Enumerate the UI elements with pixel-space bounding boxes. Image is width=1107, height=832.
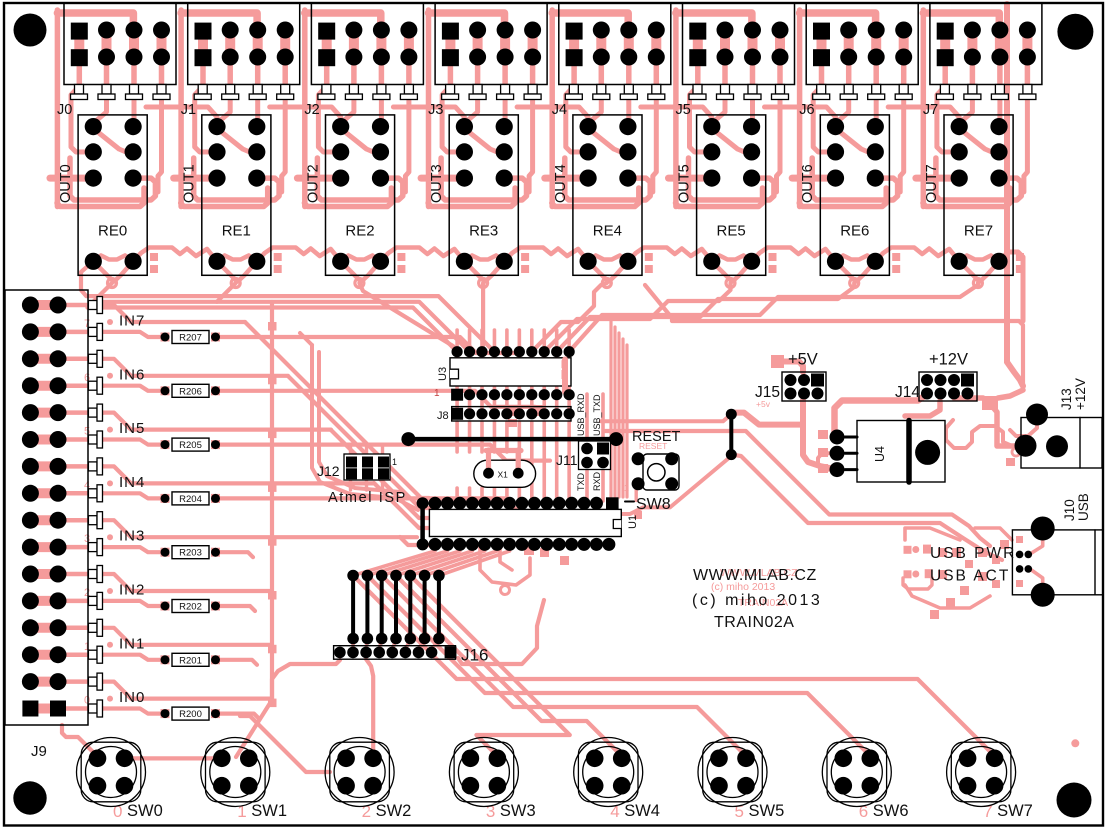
svg-text:+12V: +12V <box>1073 378 1088 410</box>
svg-text:J8: J8 <box>437 410 449 422</box>
svg-text:J5: J5 <box>676 102 691 118</box>
svg-text:OUT0: OUT0 <box>58 164 74 203</box>
svg-text:IN5: IN5 <box>119 420 145 437</box>
svg-text:USB_TXD: USB_TXD <box>592 394 602 436</box>
svg-text:J0: J0 <box>57 102 72 118</box>
svg-text:SW5: SW5 <box>749 802 785 820</box>
svg-text:SW1: SW1 <box>251 802 287 820</box>
svg-text:1: 1 <box>624 483 629 493</box>
svg-text:RE6: RE6 <box>840 223 869 240</box>
svg-text:R207: R207 <box>179 333 202 344</box>
svg-text:Atmel ISP: Atmel ISP <box>328 490 407 506</box>
svg-text:RE7: RE7 <box>964 223 993 240</box>
svg-text:SW0: SW0 <box>127 802 163 820</box>
svg-text:OUT2: OUT2 <box>305 164 321 203</box>
svg-text:R204: R204 <box>179 494 202 505</box>
svg-text:R202: R202 <box>179 602 202 613</box>
svg-text:1: 1 <box>434 388 440 399</box>
svg-text:R206: R206 <box>179 386 202 397</box>
svg-text:USB_RXD: USB_RXD <box>576 393 586 436</box>
svg-text:J4: J4 <box>552 102 567 118</box>
svg-text:RE3: RE3 <box>469 223 498 240</box>
svg-text:U1: U1 <box>627 515 639 529</box>
svg-text:RESET: RESET <box>632 429 680 445</box>
svg-text:IN4: IN4 <box>119 474 145 491</box>
svg-text:R203: R203 <box>179 548 202 559</box>
svg-text:SW3: SW3 <box>500 802 536 820</box>
svg-text:IN3: IN3 <box>119 528 145 545</box>
svg-text:RE0: RE0 <box>98 223 127 240</box>
svg-text:J1: J1 <box>181 102 196 118</box>
svg-text:IN7: IN7 <box>119 313 145 330</box>
svg-text:IN6: IN6 <box>119 366 145 383</box>
svg-text:J12: J12 <box>317 463 340 479</box>
svg-text:IN1: IN1 <box>119 635 145 652</box>
svg-text:OUT3: OUT3 <box>429 164 445 203</box>
svg-text:R200: R200 <box>179 709 202 720</box>
svg-text:SW8: SW8 <box>636 496 671 513</box>
svg-text:J16: J16 <box>461 646 488 665</box>
svg-text:J2: J2 <box>304 102 319 118</box>
svg-text:1: 1 <box>392 457 397 467</box>
svg-text:OUT1: OUT1 <box>182 164 198 203</box>
svg-text:OUT7: OUT7 <box>924 164 940 203</box>
svg-text:+12V: +12V <box>929 351 968 369</box>
svg-text:WWW.MLAB.CZ: WWW.MLAB.CZ <box>693 567 817 584</box>
svg-text:(c) miho 2013: (c) miho 2013 <box>692 592 822 609</box>
svg-text:TXD: TXD <box>576 472 586 491</box>
svg-text:USB ACT: USB ACT <box>930 568 1010 585</box>
svg-text:J7: J7 <box>923 102 938 118</box>
svg-text:TRAIN02A: TRAIN02A <box>714 614 794 631</box>
svg-text:X1: X1 <box>498 470 509 480</box>
svg-text:OUT5: OUT5 <box>677 164 693 203</box>
svg-text:J10: J10 <box>1062 499 1077 521</box>
svg-text:IN0: IN0 <box>119 689 145 706</box>
svg-text:OUT6: OUT6 <box>800 164 816 203</box>
svg-text:OUT4: OUT4 <box>553 164 569 203</box>
svg-text:U4: U4 <box>873 446 887 462</box>
svg-text:J6: J6 <box>799 102 814 118</box>
svg-text:+5V: +5V <box>788 351 818 369</box>
svg-text:RE5: RE5 <box>717 223 746 240</box>
svg-text:J3: J3 <box>428 102 443 118</box>
svg-text:SW7: SW7 <box>997 802 1033 820</box>
svg-text:J15: J15 <box>755 384 780 401</box>
svg-text:J11: J11 <box>556 452 578 468</box>
svg-text:U3: U3 <box>437 367 449 381</box>
svg-text:RE4: RE4 <box>593 223 622 240</box>
svg-text:IN2: IN2 <box>119 582 145 599</box>
svg-text:J14: J14 <box>895 384 920 401</box>
svg-text:USB PWR: USB PWR <box>930 545 1016 562</box>
svg-text:SW4: SW4 <box>624 802 660 820</box>
svg-text:R205: R205 <box>179 440 202 451</box>
svg-text:R201: R201 <box>179 655 202 666</box>
svg-text:RE1: RE1 <box>222 223 251 240</box>
svg-text:J13: J13 <box>1059 388 1074 410</box>
svg-text:RXD: RXD <box>592 471 602 491</box>
svg-text:SW2: SW2 <box>376 802 412 820</box>
svg-text:USB: USB <box>1076 493 1091 521</box>
svg-text:RE2: RE2 <box>345 223 374 240</box>
svg-text:J9: J9 <box>31 743 47 760</box>
svg-text:SW6: SW6 <box>873 802 909 820</box>
